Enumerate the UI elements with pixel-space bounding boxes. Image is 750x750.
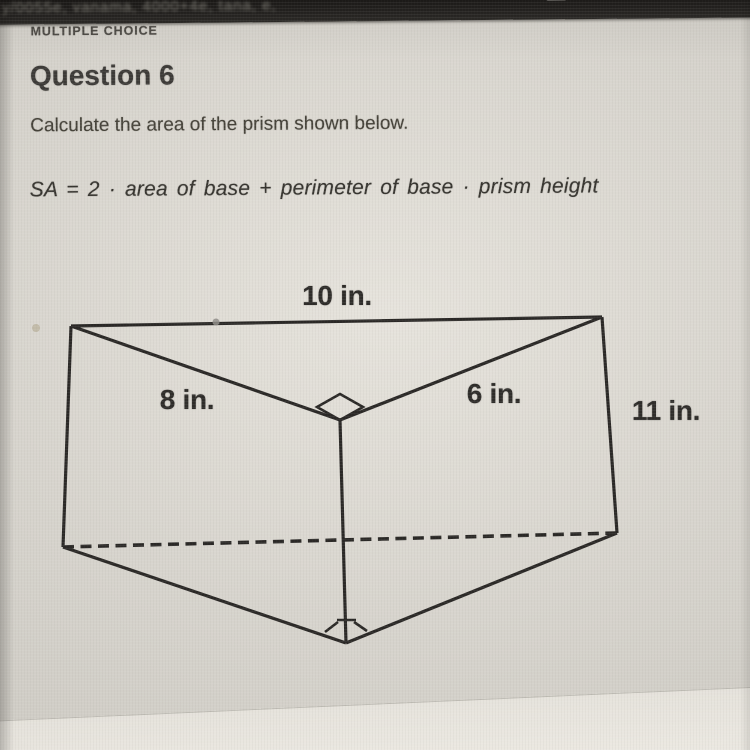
refresh-icon[interactable]: ⟳ xyxy=(718,0,739,6)
quiz-content: MULTIPLE CHOICE Question 6 Calculate the… xyxy=(0,0,750,750)
question-prompt: Calculate the area of the prism shown be… xyxy=(30,113,408,138)
surface-area-formula: SA = 2 · area of base + perimeter of bas… xyxy=(30,174,599,202)
titlebar-blurred-text: y/0055e, vanama, 4000+4e, tana, e, xyxy=(2,0,277,17)
dimension-label-8in: 8 in. xyxy=(160,384,215,416)
close-icon[interactable]: ✕ xyxy=(582,0,601,2)
dimension-label-10in: 10 in. xyxy=(302,280,372,312)
dimension-label-6in: 6 in. xyxy=(467,378,522,410)
question-title: Question 6 xyxy=(30,59,175,92)
screen-photo: y/0055e, vanama, 4000+4e, tana, e, ✕ ⟳ M… xyxy=(0,0,750,750)
question-type-label: MULTIPLE CHOICE xyxy=(31,24,158,39)
dimension-label-11in: 11 in. xyxy=(632,395,700,427)
